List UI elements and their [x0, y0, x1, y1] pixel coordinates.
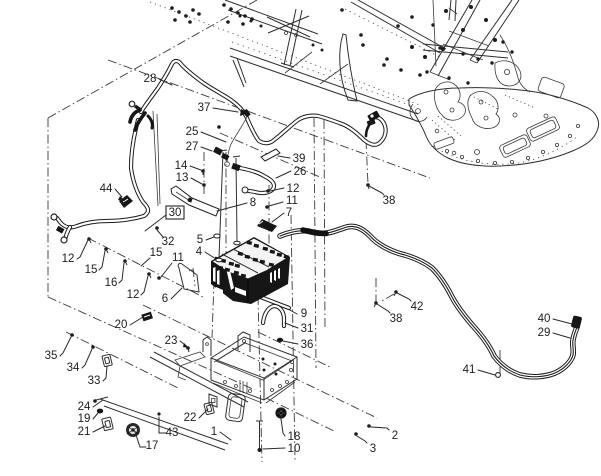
svg-text:35: 35 [45, 350, 58, 362]
svg-text:43: 43 [166, 427, 179, 439]
svg-text:44: 44 [100, 183, 113, 195]
svg-text:33: 33 [88, 375, 101, 387]
svg-text:15: 15 [85, 264, 98, 276]
svg-text:7: 7 [286, 207, 292, 219]
svg-text:42: 42 [411, 301, 424, 313]
svg-text:1: 1 [211, 426, 217, 438]
svg-text:28: 28 [144, 73, 157, 85]
svg-text:11: 11 [172, 252, 184, 264]
svg-text:30: 30 [169, 207, 182, 219]
svg-text:21: 21 [78, 426, 91, 438]
svg-text:36: 36 [301, 339, 314, 351]
svg-text:41: 41 [463, 364, 476, 376]
svg-text:3: 3 [370, 443, 376, 455]
svg-text:2: 2 [392, 430, 398, 442]
svg-text:39: 39 [293, 153, 306, 165]
svg-text:37: 37 [198, 102, 211, 114]
svg-text:10: 10 [288, 443, 301, 455]
svg-text:5: 5 [197, 234, 203, 246]
svg-text:6: 6 [162, 293, 168, 305]
svg-text:18: 18 [288, 431, 301, 443]
svg-text:24: 24 [78, 401, 91, 413]
svg-text:38: 38 [383, 195, 396, 207]
svg-text:15: 15 [150, 247, 163, 259]
svg-text:20: 20 [115, 319, 128, 331]
svg-text:29: 29 [538, 327, 551, 339]
svg-text:8: 8 [250, 197, 256, 209]
svg-text:38: 38 [390, 313, 403, 325]
svg-text:32: 32 [162, 236, 175, 248]
svg-text:34: 34 [67, 362, 80, 374]
svg-text:25: 25 [186, 126, 199, 138]
svg-text:22: 22 [184, 412, 197, 424]
svg-text:27: 27 [186, 141, 199, 153]
svg-text:16: 16 [105, 277, 118, 289]
svg-text:23: 23 [165, 335, 178, 347]
svg-text:13: 13 [176, 172, 189, 184]
svg-text:11: 11 [286, 195, 298, 207]
svg-text:12: 12 [127, 289, 140, 301]
svg-text:14: 14 [175, 160, 188, 172]
svg-text:4: 4 [196, 246, 203, 258]
svg-text:26: 26 [294, 166, 307, 178]
svg-text:9: 9 [301, 308, 307, 320]
svg-text:40: 40 [538, 313, 551, 325]
svg-text:12: 12 [62, 253, 75, 265]
svg-text:12: 12 [287, 183, 300, 195]
svg-text:31: 31 [301, 323, 314, 335]
svg-text:19: 19 [78, 413, 91, 425]
svg-text:17: 17 [146, 440, 159, 452]
